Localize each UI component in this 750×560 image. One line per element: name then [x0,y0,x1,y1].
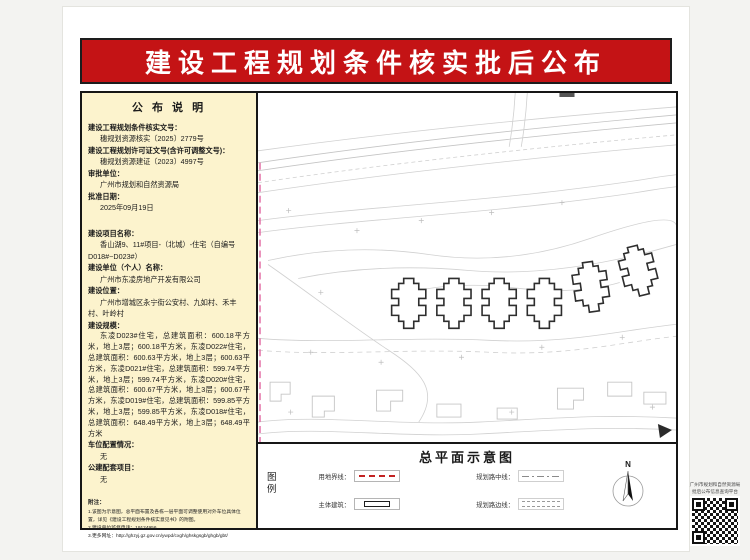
legend-item-building: 主体建筑： [294,498,400,510]
legend-item-label: 规划路边线： [458,500,514,509]
field-label: 车位配置情况： [88,439,250,451]
notes-title: 附注： [88,499,250,509]
legend-item-label: 用地界线： [294,472,350,481]
legend-swatch-edgeline [518,498,564,510]
field-label: 建设单位（个人）名称： [88,262,250,274]
legend-item-boundary: 用地界线： [294,470,400,482]
map-svg [258,93,676,442]
field-label: 建设位置： [88,285,250,297]
note-line: 1.该图为示意图，总平面布置及各栋一层平面可调整使用对外车位具体位置，详见《建设… [88,509,250,525]
field-value: 无 [88,451,250,463]
note-line: 3.更多网址：http://ghzyj.gz.gov.cn/ywpd/cxgh/… [88,533,250,541]
field-label: 批准日期： [88,191,250,203]
info-panel-title: 公 布 说 明 [88,100,250,118]
qr-block: 广州市规划和自然资源局 批后公布信息查询平台 [686,482,744,544]
legend-swatch-building [354,498,400,510]
legend-panel: 总平面示意图 图例 用地界线： 主体建筑： 规划路中线： 规划路边线： N [258,442,676,528]
field-value: 广州市规划和自然资源局 [88,179,250,191]
building-footprint [570,260,611,314]
map-label-block [559,93,574,97]
field-value: 穗规划资源核实〔2025〕2779号 [88,133,250,145]
field-value: 东凌D023#住宅，总建筑面积：600.18平方米，地上3层；600.18平方米… [88,331,250,439]
field-label: 建设项目名称： [88,228,250,240]
plan-column: 总平面示意图 图例 用地界线： 主体建筑： 规划路中线： 规划路边线： N [258,93,676,528]
field-label: 建设工程规划条件核实文号： [88,122,250,134]
field-value: 广州市东凌房地产开发有限公司 [88,274,250,286]
site-plan-map [258,93,676,442]
field-label: 建设工程规划许可证文号(含许可调整文号)： [88,145,250,157]
field-label: 建设规模： [88,320,250,332]
main-frame: 公 布 说 明 建设工程规划条件核实文号： 穗规划资源核实〔2025〕2779号… [80,91,678,530]
info-panel: 公 布 说 明 建设工程规划条件核实文号： 穗规划资源核实〔2025〕2779号… [82,93,258,528]
field-value: 广州市增城区永宁街公安村、九如村、禾丰村、叶岭村 [88,297,250,320]
field-value: 2025年09月19日 [88,202,250,214]
notes-block: 附注： 1.该图为示意图，总平面布置及各栋一层平面可调整使用对外车位具体位置，详… [88,499,250,541]
map-arrow-mark [658,424,672,438]
banner-title: 建设工程规划条件核实批后公布 [145,43,607,80]
legend-swatch-centerline [518,470,564,482]
compass-icon [609,469,647,511]
field-value: 香山湖9、11#项目-（北城）-住宅（自编号D018#~D023#） [88,239,250,262]
qr-caption-line2: 批后公布信息查询平台 [688,489,741,495]
field-value: 无 [88,474,250,486]
legend-swatch-boundary [354,470,400,482]
building-footprint [437,278,471,328]
map-existing-buildings [270,382,666,419]
field-label: 审批单位： [88,168,250,180]
field-label: 公建配套项目： [88,462,250,474]
map-roads [258,93,676,435]
field-value: 穗规划资源建证〔2023〕4997号 [88,156,250,168]
legend-item-label: 主体建筑： [294,500,350,509]
north-compass: N [608,460,648,516]
building-footprint [527,278,561,328]
building-footprint [392,278,426,328]
qr-code [692,498,738,544]
qr-caption-line1: 广州市规划和自然资源局 [688,482,741,488]
legend-item-road-centerline: 规划路中线： [458,470,564,482]
legend-item-label: 规划路中线： [458,472,514,481]
banner: 建设工程规划条件核实批后公布 [80,38,672,84]
north-label: N [608,460,648,469]
legend-item-road-edgeline: 规划路边线： [458,498,564,510]
note-line: 2.建设单位监督电话：19124956 [88,525,250,533]
legend-label: 图例 [267,472,278,496]
